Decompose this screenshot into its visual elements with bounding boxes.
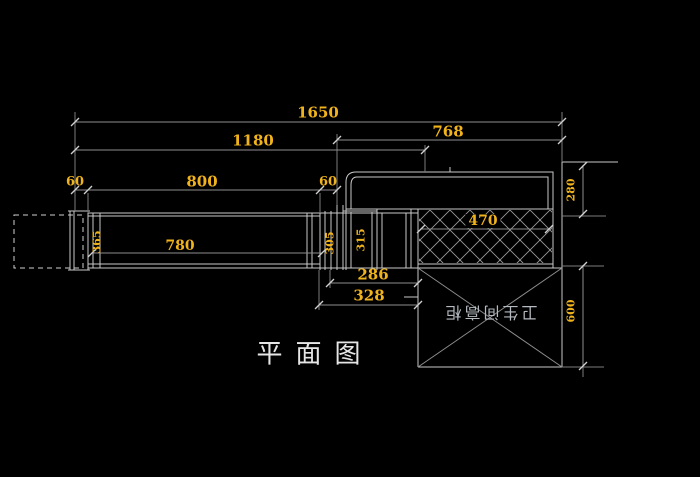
dim-800-label: 800 [186, 175, 217, 190]
dim-365-label: 365 [92, 231, 103, 254]
cad-plan-drawing: 1650 1180 768 60 800 60 780 470 286 328 … [0, 0, 700, 477]
dim-286-label: 286 [357, 268, 388, 283]
dim-470-label: 470 [465, 214, 500, 228]
dim-780-label: 780 [165, 239, 194, 253]
cabinet-label: 卫生间高柜 [442, 302, 537, 326]
linework-svg [0, 0, 700, 477]
drawing-title: 平面图 [256, 334, 373, 371]
dim-60-left-label: 60 [66, 176, 84, 189]
dim-600-label: 600 [566, 300, 577, 323]
dim-1180-label: 1180 [232, 134, 274, 149]
dashed-hidden-box [14, 215, 83, 268]
dim-315-label: 315 [356, 229, 367, 252]
dim-305-label: 305 [325, 232, 336, 255]
dim-60-right-label: 60 [319, 176, 337, 189]
dim-1650-label: 1650 [297, 106, 339, 121]
dim-768-label: 768 [432, 125, 463, 140]
dim-280-label: 280 [566, 179, 577, 202]
dim-328-label: 328 [353, 289, 384, 304]
